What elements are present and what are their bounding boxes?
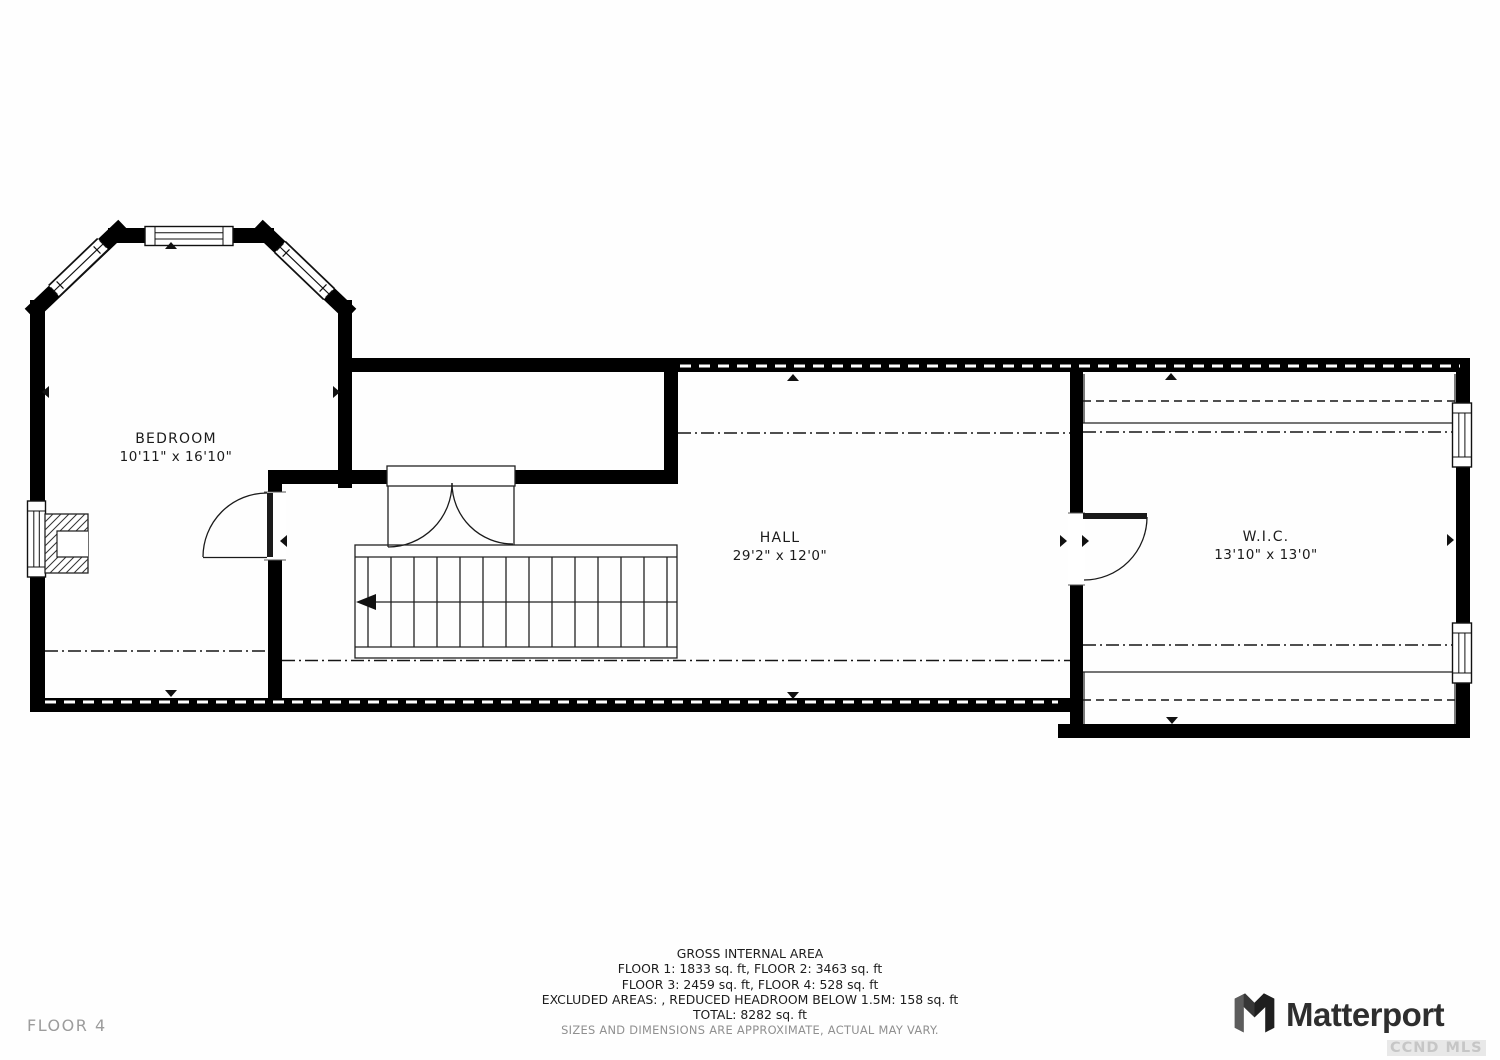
mls-watermark: CCND MLS: [1387, 1040, 1486, 1056]
marker-right: [1447, 534, 1454, 546]
area-summary-line: FLOOR 1: 1833 sq. ft, FLOOR 2: 3463 sq. …: [0, 961, 1500, 976]
alcove-double-door: [387, 466, 515, 547]
floor-plan-drawing: BEDROOM 10'11" x 16'10" HALL 29'2" x 12'…: [0, 0, 1500, 1060]
wic-dimensions: 13'10" x 13'0": [1214, 547, 1318, 563]
bedroom-dimensions: 10'11" x 16'10": [120, 449, 233, 465]
room-labels: BEDROOM 10'11" x 16'10" HALL 29'2" x 12'…: [120, 431, 1318, 564]
bedroom-door: [203, 492, 286, 560]
marker-down: [165, 690, 177, 697]
matterport-wordmark: Matterport: [1286, 996, 1444, 1034]
staircase: [355, 545, 677, 658]
headroom-guide-lines: [45, 366, 1460, 724]
bay-left-window: [51, 240, 107, 294]
room-label-wic: W.I.C. 13'10" x 13'0": [1214, 529, 1318, 563]
hall-dimensions: 29'2" x 12'0": [733, 548, 827, 564]
area-summary-line: FLOOR 3: 2459 sq. ft, FLOOR 4: 528 sq. f…: [0, 977, 1500, 992]
marker-down: [1166, 717, 1178, 724]
bedroom-left-window: [28, 501, 46, 577]
room-label-bedroom: BEDROOM 10'11" x 16'10": [120, 431, 233, 465]
matterport-logo-icon: [1231, 992, 1278, 1039]
marker-right: [1082, 535, 1089, 547]
wic-door: [1068, 513, 1147, 585]
bay-top-window: [145, 227, 233, 246]
wic-name: W.I.C.: [1243, 529, 1290, 545]
area-summary-title: GROSS INTERNAL AREA: [0, 946, 1500, 961]
wic-window-lower: [1453, 623, 1472, 683]
marker-right: [1060, 535, 1067, 547]
room-label-hall: HALL 29'2" x 12'0": [733, 530, 827, 564]
wic-window-upper: [1453, 403, 1472, 467]
stair-direction-arrow: [356, 594, 376, 610]
marker-down: [787, 692, 799, 699]
bay-right-window: [277, 243, 333, 297]
hall-name: HALL: [760, 530, 801, 546]
marker-up: [787, 374, 799, 381]
marker-up: [1165, 373, 1177, 380]
chimney: [45, 514, 88, 573]
windows: [28, 227, 1472, 684]
floor-plan-page: BEDROOM 10'11" x 16'10" HALL 29'2" x 12'…: [0, 0, 1500, 1060]
walls: [30, 228, 1470, 738]
bedroom-name: BEDROOM: [135, 431, 216, 447]
